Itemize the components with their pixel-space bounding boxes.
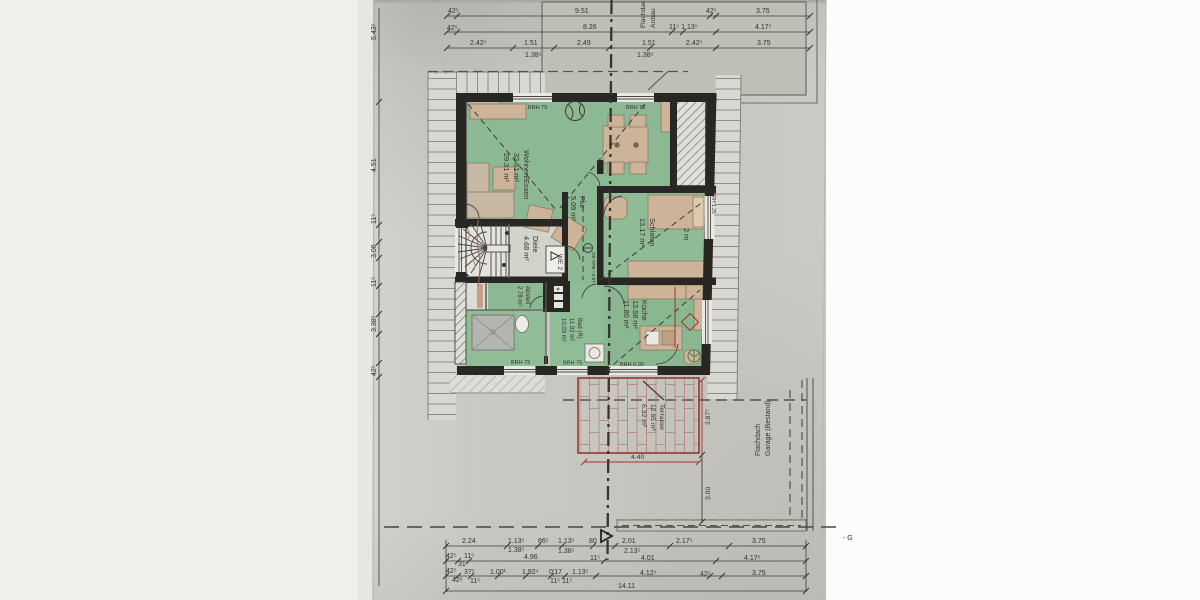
svg-text:3.75: 3.75 xyxy=(757,40,771,47)
svg-text:11⁵: 11⁵ xyxy=(590,555,600,562)
svg-text:2.42⁵: 2.42⁵ xyxy=(470,40,487,47)
svg-text:4.01: 4.01 xyxy=(641,555,655,562)
svg-text:2.13⁵: 2.13⁵ xyxy=(624,548,641,555)
svg-text:42⁵: 42⁵ xyxy=(371,365,378,376)
svg-text:8.26: 8.26 xyxy=(583,24,597,31)
svg-text:Schlafen: Schlafen xyxy=(648,218,657,246)
svg-text:4.17⁵: 4.17⁵ xyxy=(744,555,761,562)
svg-text:2.01: 2.01 xyxy=(622,538,636,545)
svg-text:0'17: 0'17 xyxy=(549,569,562,576)
svg-text:4.12⁵: 4.12⁵ xyxy=(640,570,657,577)
svg-text:Flachdach: Flachdach xyxy=(640,0,647,28)
svg-text:4.17⁵: 4.17⁵ xyxy=(755,24,772,31)
svg-text:BRH 75: BRH 75 xyxy=(511,360,530,366)
svg-text:32.61 m²: 32.61 m² xyxy=(512,153,521,182)
svg-text:4.68 m²: 4.68 m² xyxy=(522,236,531,261)
svg-text:BRH 75: BRH 75 xyxy=(626,105,645,111)
svg-text:2.42⁵: 2.42⁵ xyxy=(686,40,703,47)
svg-text:11.80 m²: 11.80 m² xyxy=(622,300,631,329)
svg-text:11⁵: 11⁵ xyxy=(470,578,480,585)
svg-text:Bad (R): Bad (R) xyxy=(576,318,582,339)
svg-text:Abstell: Abstell xyxy=(524,286,530,304)
svg-text:1.38⁵: 1.38⁵ xyxy=(637,52,654,59)
svg-text:Anbau: Anbau xyxy=(650,8,657,28)
svg-text:42⁶: 42⁶ xyxy=(452,577,463,584)
svg-text:3.06: 3.06 xyxy=(371,244,378,258)
svg-text:42⁵: 42⁵ xyxy=(447,25,458,32)
svg-text:10.03 m²: 10.03 m² xyxy=(560,318,566,342)
svg-text:11⁵ 11⁵: 11⁵ 11⁵ xyxy=(550,578,572,585)
svg-text:2.24: 2.24 xyxy=(462,538,476,545)
svg-text:2.49: 2.49 xyxy=(577,40,591,47)
svg-text:BRH 1.25: BRH 1.25 xyxy=(710,192,716,214)
svg-text:2.87⁵: 2.87⁵ xyxy=(705,409,712,425)
svg-text:12.65 m²: 12.65 m² xyxy=(649,404,656,432)
svg-text:11.92 m²: 11.92 m² xyxy=(568,318,574,341)
svg-text:6.32 m²: 6.32 m² xyxy=(640,404,647,428)
svg-text:Terrasse: Terrasse xyxy=(658,404,665,430)
svg-text:3.38⁵: 3.38⁵ xyxy=(371,315,378,332)
svg-text:1.00¹: 1.00¹ xyxy=(490,569,507,576)
svg-text:1.38⁵: 1.38⁵ xyxy=(525,52,542,59)
svg-text:9.51: 9.51 xyxy=(575,8,589,15)
svg-text:3.75: 3.75 xyxy=(752,570,766,577)
svg-text:3.00: 3.00 xyxy=(705,487,712,500)
svg-text:Diele: Diele xyxy=(531,236,540,253)
svg-text:1.13⁵: 1.13⁵ xyxy=(558,538,575,545)
svg-text:4.96: 4.96 xyxy=(524,554,538,561)
svg-text:OK FFB −2.87: OK FFB −2.87 xyxy=(590,252,596,283)
svg-text:BRH 75: BRH 75 xyxy=(528,105,547,111)
svg-text:Flur: Flur xyxy=(578,196,587,209)
svg-text:BRH 75: BRH 75 xyxy=(563,361,582,367)
svg-text:1.38⁵: 1.38⁵ xyxy=(508,547,525,554)
svg-text:1.13⁵: 1.13⁵ xyxy=(508,538,525,545)
svg-text:4.51: 4.51 xyxy=(371,158,378,172)
svg-text:3.75: 3.75 xyxy=(752,538,766,545)
svg-text:WE 2: WE 2 xyxy=(556,254,563,270)
svg-text:37⁵: 37⁵ xyxy=(464,569,475,576)
svg-text:42⁵: 42⁵ xyxy=(706,8,717,15)
svg-text:42⁵: 42⁵ xyxy=(448,8,459,15)
svg-text:BRH 0.00: BRH 0.00 xyxy=(620,362,644,368)
svg-text:1.51: 1.51 xyxy=(642,40,656,47)
svg-text:5.09 m²: 5.09 m² xyxy=(569,196,578,221)
svg-text:2.78 m²: 2.78 m² xyxy=(516,286,522,306)
svg-text:2.17⁵: 2.17⁵ xyxy=(676,538,693,545)
svg-text:4.40: 4.40 xyxy=(631,454,644,461)
svg-text:11⁵: 11⁵ xyxy=(464,553,474,560)
svg-text:13.17 m²: 13.17 m² xyxy=(638,218,647,247)
svg-text:31: 31 xyxy=(458,561,466,568)
svg-text:2 m: 2 m xyxy=(682,228,691,240)
svg-text:11⁵ 1.13⁵: 11⁵ 1.13⁵ xyxy=(669,24,698,31)
svg-text:1.92⁴: 1.92⁴ xyxy=(522,569,539,576)
svg-text:1.13⁵: 1.13⁵ xyxy=(572,569,589,576)
svg-text:Flachdach: Flachdach xyxy=(755,424,762,456)
svg-text:5.43⁵: 5.43⁵ xyxy=(371,23,378,40)
svg-text:Wohnen/Essen: Wohnen/Essen xyxy=(522,150,531,199)
svg-text:1.38⁵: 1.38⁵ xyxy=(558,548,575,555)
svg-text:11⁵: 11⁵ xyxy=(371,214,378,224)
svg-text:Garage (Bestand): Garage (Bestand) xyxy=(765,400,772,456)
svg-text:1.51: 1.51 xyxy=(524,40,538,47)
svg-text:- G: - G xyxy=(843,535,853,542)
svg-text:29.31 m²: 29.31 m² xyxy=(502,153,511,182)
svg-text:14.11: 14.11 xyxy=(618,583,635,590)
svg-text:11⁵: 11⁵ xyxy=(371,277,378,287)
svg-text:3.75: 3.75 xyxy=(756,8,770,15)
svg-text:Küche: Küche xyxy=(640,300,649,321)
svg-text:13.58 m²: 13.58 m² xyxy=(631,300,640,329)
